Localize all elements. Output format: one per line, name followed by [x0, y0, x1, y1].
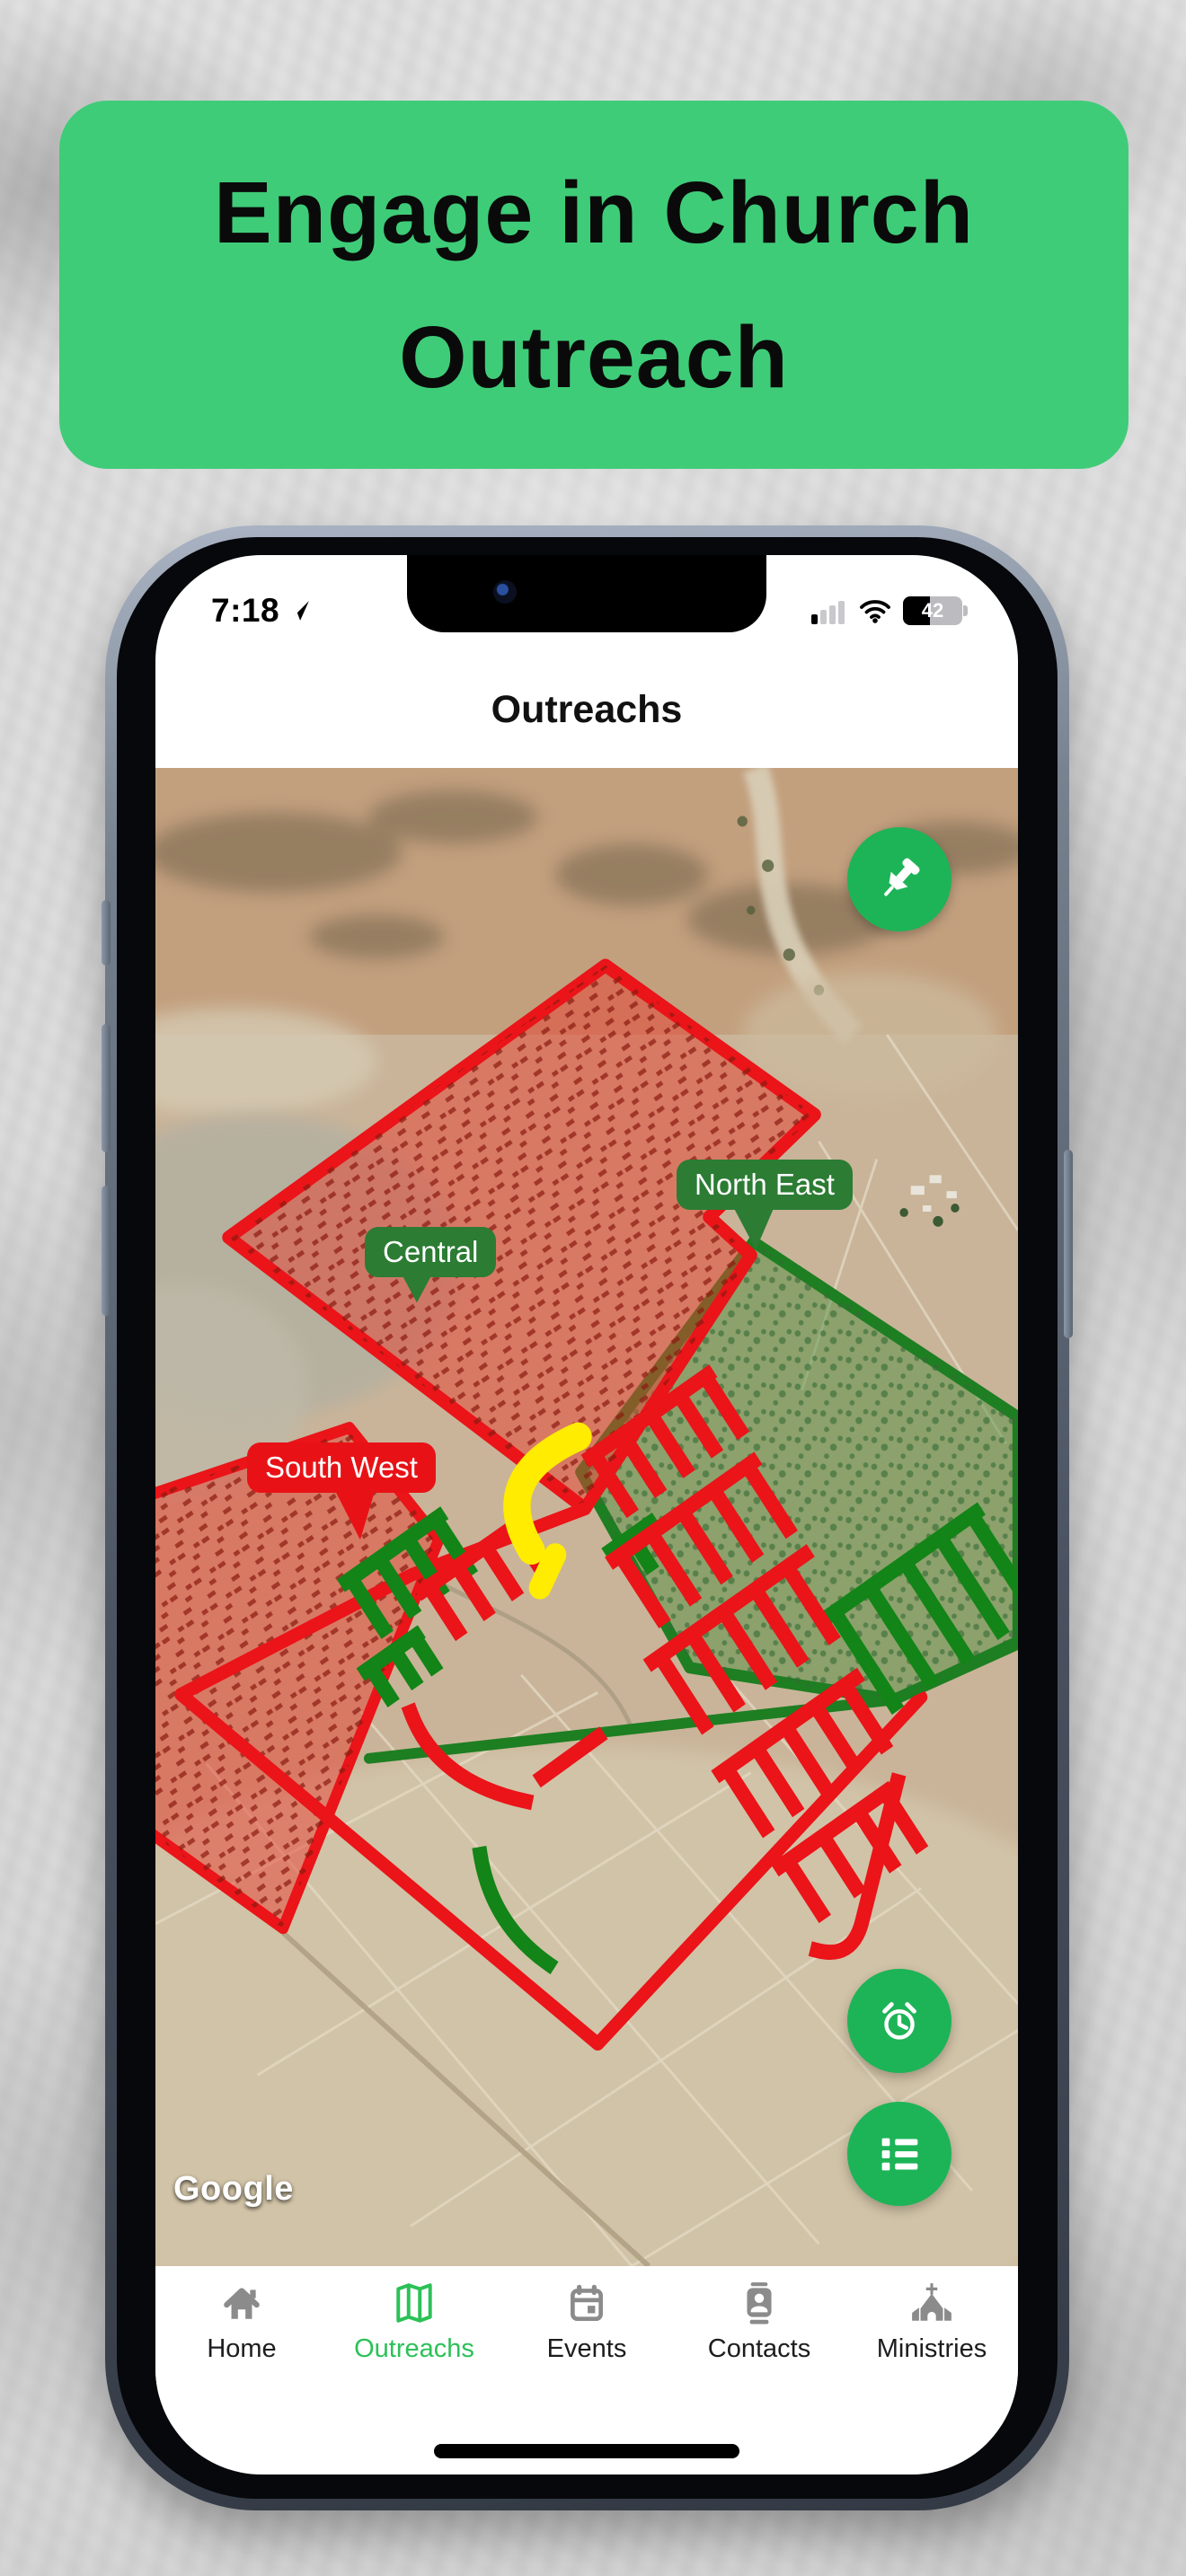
banner-line-2: Outreach: [399, 313, 789, 401]
tab-events[interactable]: Events: [500, 2266, 673, 2426]
mute-switch: [102, 900, 111, 966]
list-view-button[interactable]: [847, 2102, 951, 2206]
tab-label: Contacts: [708, 2334, 810, 2364]
battery-icon: 42: [903, 596, 962, 625]
tab-home[interactable]: Home: [155, 2266, 328, 2426]
wifi-icon: [859, 598, 891, 623]
headline-banner: Engage in Church Outreach: [59, 101, 1128, 469]
contacts-icon: [737, 2280, 782, 2325]
google-attribution: Google: [173, 2170, 294, 2209]
phone-screen: 7:18: [155, 555, 1018, 2475]
tab-label: Events: [547, 2334, 627, 2364]
region-marker-north-east[interactable]: North East: [677, 1160, 853, 1210]
volume-down-button: [102, 1186, 111, 1316]
region-label-text: South West: [265, 1451, 418, 1484]
status-bar: 7:18: [155, 587, 1018, 634]
region-marker-central[interactable]: Central: [365, 1227, 496, 1277]
list-icon: [872, 2126, 927, 2182]
alarm-clock-icon: [872, 1993, 927, 2049]
battery-nub: [963, 605, 968, 616]
tab-outreachs[interactable]: Outreachs: [328, 2266, 500, 2426]
church-icon: [909, 2280, 954, 2325]
page: Engage in Church Outreach 7:18: [0, 0, 1186, 2576]
region-label-text: North East: [695, 1168, 835, 1201]
battery-percent: 42: [903, 596, 962, 625]
page-title: Outreachs: [155, 688, 1018, 732]
tab-contacts[interactable]: Contacts: [673, 2266, 845, 2426]
add-pin-button[interactable]: [847, 827, 951, 931]
tab-label: Outreachs: [354, 2334, 474, 2364]
region-label-text: Central: [383, 1235, 478, 1268]
pushpin-icon: [872, 851, 927, 907]
schedule-button[interactable]: [847, 1969, 951, 2073]
tab-label: Ministries: [877, 2334, 987, 2364]
cellular-signal-icon: [811, 597, 847, 624]
volume-up-button: [102, 1024, 111, 1152]
phone-frame: 7:18: [105, 525, 1069, 2510]
location-arrow-icon: [288, 599, 311, 622]
tab-ministries[interactable]: Ministries: [845, 2266, 1018, 2426]
clock-time: 7:18: [211, 592, 279, 630]
map-icon: [392, 2280, 437, 2325]
region-marker-south-west[interactable]: South West: [247, 1442, 436, 1493]
power-button: [1064, 1150, 1073, 1338]
banner-line-1: Engage in Church: [214, 169, 974, 256]
home-indicator[interactable]: [434, 2444, 739, 2458]
bottom-tab-bar: Home Outreachs Events: [155, 2266, 1018, 2426]
home-icon: [219, 2280, 264, 2325]
tab-label: Home: [207, 2334, 276, 2364]
calendar-icon: [564, 2280, 609, 2325]
outreach-map[interactable]: Central North East South West: [155, 768, 1018, 2266]
